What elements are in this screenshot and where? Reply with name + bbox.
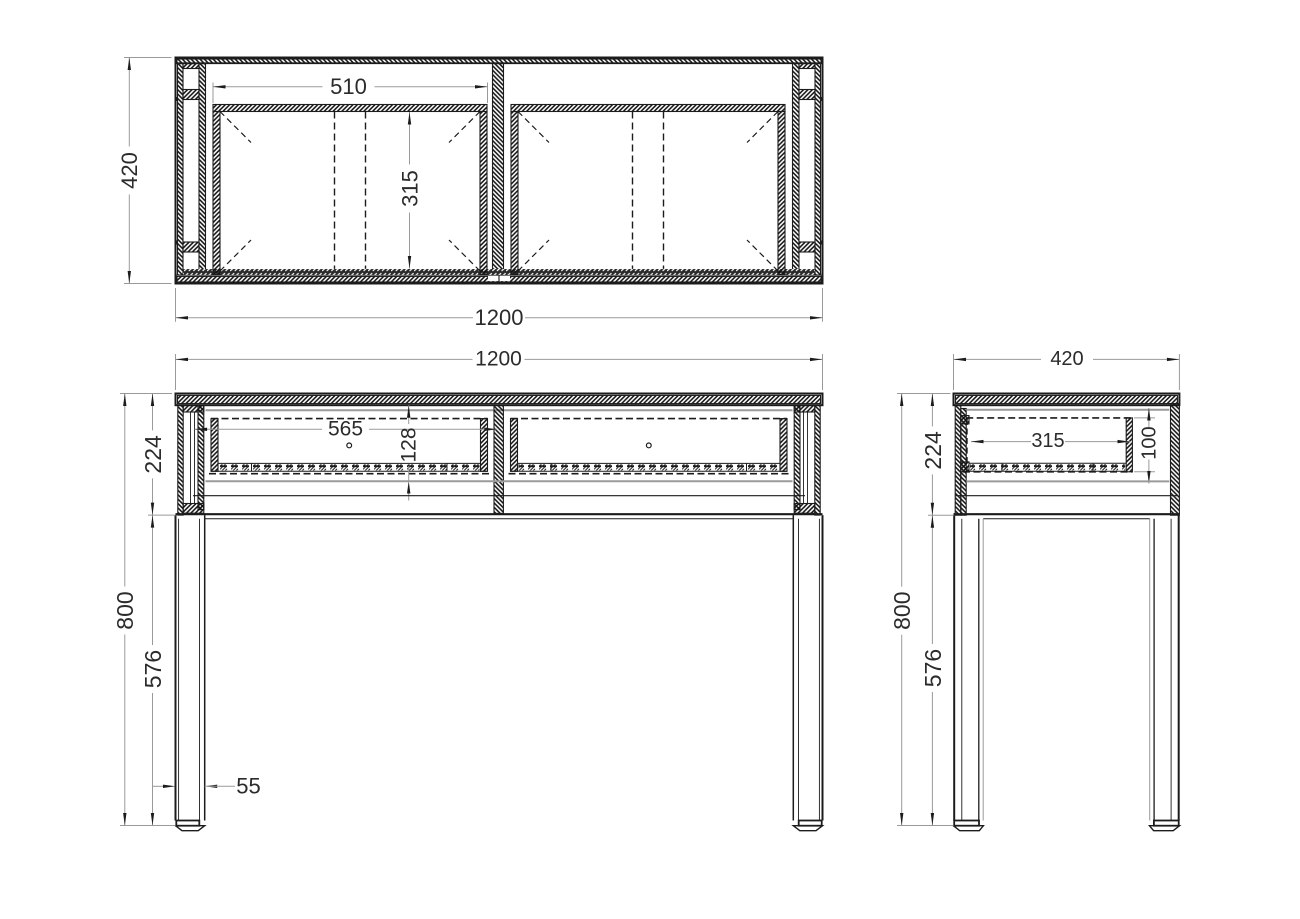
svg-text:510: 510 [330,74,367,99]
svg-text:315: 315 [1031,430,1064,452]
svg-text:576: 576 [920,649,946,687]
svg-text:315: 315 [397,170,422,207]
svg-text:224: 224 [140,435,166,474]
svg-text:100: 100 [1138,426,1160,459]
svg-text:420: 420 [117,152,142,189]
svg-text:800: 800 [112,591,138,629]
svg-text:800: 800 [889,592,915,630]
svg-text:55: 55 [236,774,260,799]
svg-text:224: 224 [920,431,946,470]
svg-text:565: 565 [328,417,363,440]
svg-text:1200: 1200 [475,305,524,330]
svg-text:576: 576 [140,650,166,688]
svg-text:420: 420 [1050,348,1083,370]
svg-text:1200: 1200 [475,348,522,371]
svg-text:128: 128 [398,427,421,462]
